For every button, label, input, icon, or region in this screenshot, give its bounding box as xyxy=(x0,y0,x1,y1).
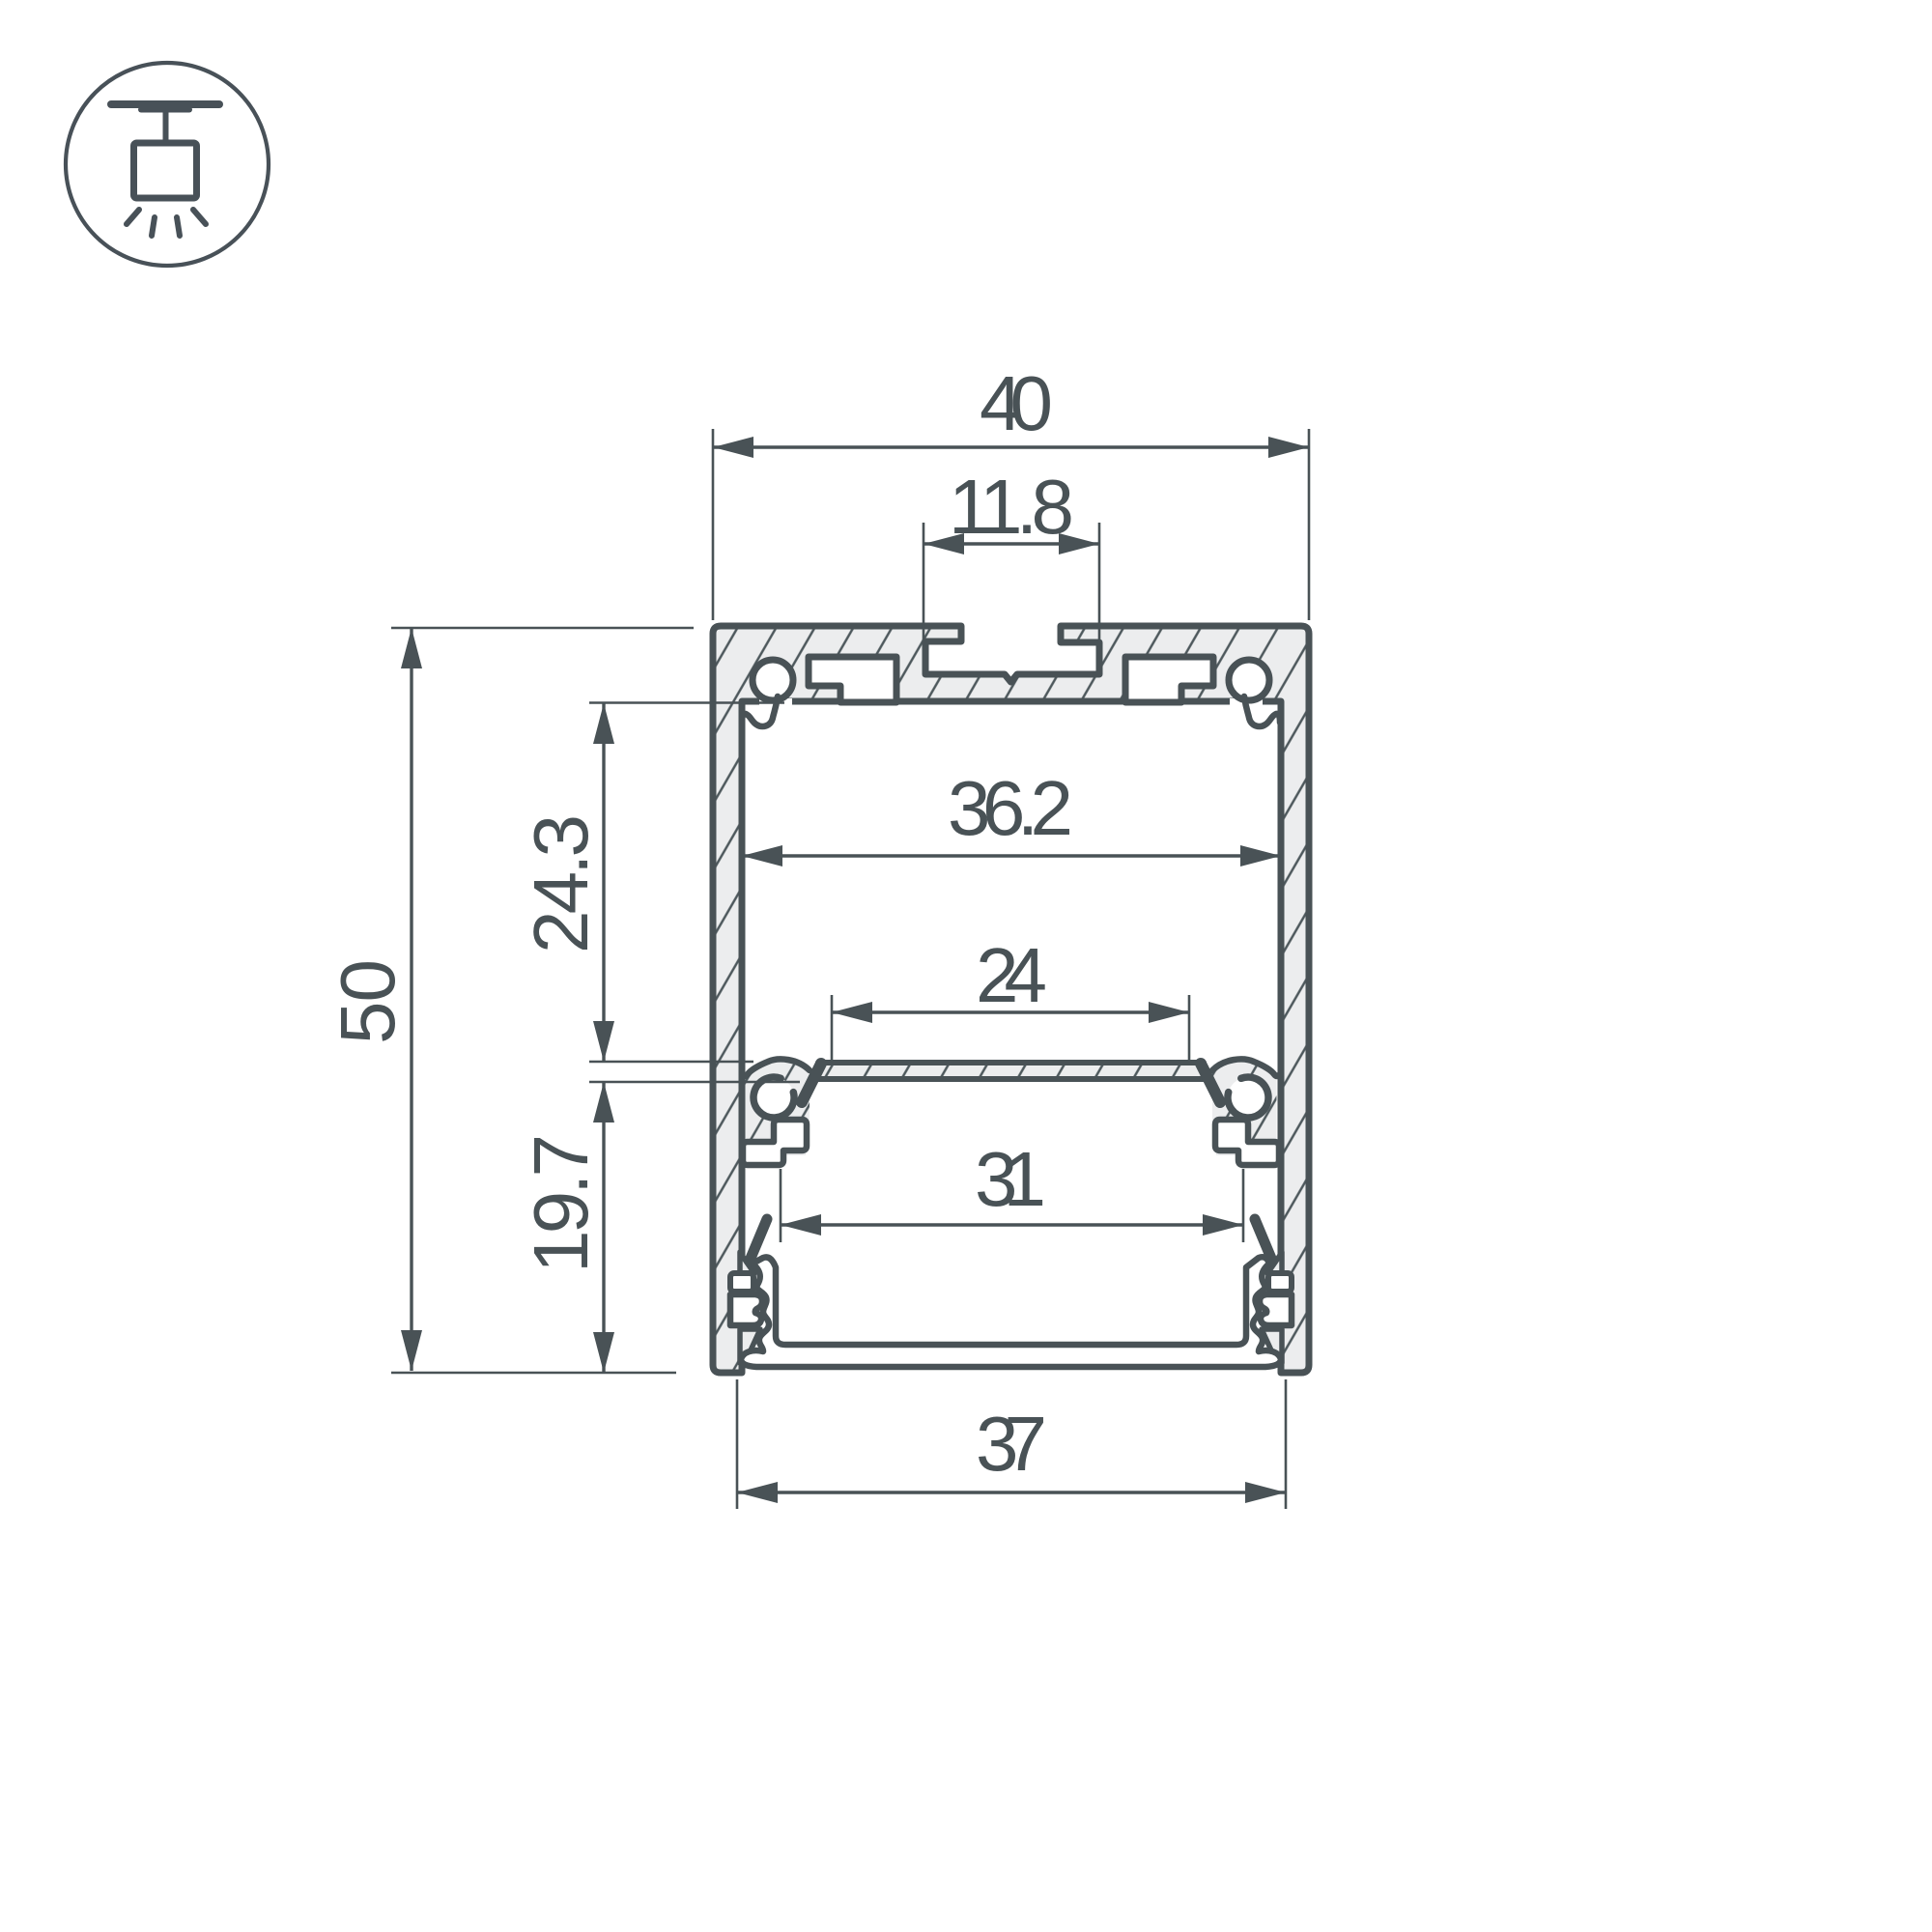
svg-text:40: 40 xyxy=(980,360,1053,446)
svg-text:11.8: 11.8 xyxy=(949,464,1074,550)
svg-text:19.7: 19.7 xyxy=(518,1134,604,1273)
svg-text:37: 37 xyxy=(976,1401,1047,1487)
svg-text:31: 31 xyxy=(975,1136,1046,1222)
svg-text:50: 50 xyxy=(325,959,411,1044)
svg-text:36.2: 36.2 xyxy=(948,765,1073,851)
svg-text:24: 24 xyxy=(976,932,1047,1018)
svg-text:24.3: 24.3 xyxy=(518,814,604,953)
